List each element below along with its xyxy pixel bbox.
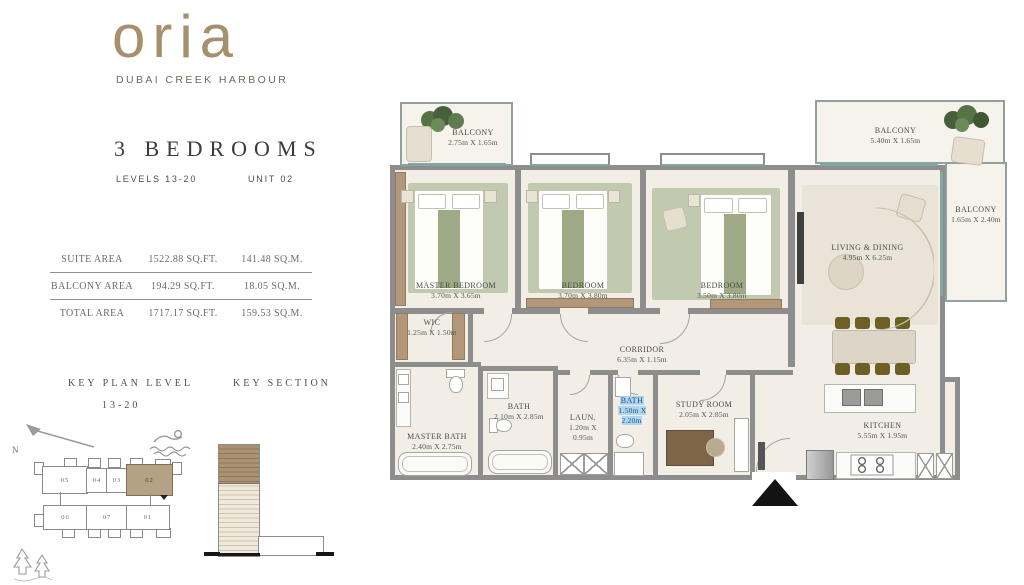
entry-marker [752, 479, 798, 506]
key-plan-subtitle: 13-20 [102, 400, 140, 411]
wall [640, 167, 646, 310]
key-plan-title: KEY PLAN LEVEL [68, 378, 193, 389]
room-dims: 3.70m X 3.65m [397, 291, 515, 301]
table-row: SUITE AREA 1522.88 SQ.FT. 141.48 SQ.M. [50, 246, 312, 273]
wall [478, 366, 483, 480]
wall [750, 370, 755, 480]
bath1-label: BATH 2.10m X 2.85m [486, 402, 552, 422]
north-label: N [12, 445, 19, 455]
room-dims: 3.70m X 3.80m [527, 291, 639, 301]
dining-chair [895, 363, 910, 375]
area-row-sqft: 194.29 SQ.FT. [134, 281, 232, 292]
window-glass [940, 172, 943, 296]
appliance [936, 453, 953, 479]
key-section-ground [216, 553, 260, 556]
unit-number: 03 [107, 469, 127, 492]
balcony-bench [406, 126, 432, 162]
bed-runner [562, 210, 584, 288]
brand-logo: oria [112, 2, 240, 71]
tv-unit [797, 212, 804, 284]
area-row-label: SUITE AREA [50, 254, 134, 265]
stove-icon [850, 454, 894, 476]
room-dims-highlighted: 1.50m X 2.20m [618, 406, 647, 425]
pillow [704, 198, 733, 213]
nightstand [688, 194, 700, 207]
room-dims: 2.05m X 2.85m [675, 410, 733, 420]
key-plan-balcony-tab [108, 458, 121, 468]
plant-icon [938, 104, 994, 136]
key-plan-unit-05: 05 [42, 466, 88, 494]
kitchen-sink [864, 389, 883, 406]
bedroom2-label: BEDROOM 3.70m X 3.80m [527, 281, 639, 301]
window-glass [408, 163, 506, 166]
unit-number: 06 [44, 506, 87, 529]
unit-number: 07 [87, 506, 127, 529]
curved-sofa [838, 202, 934, 343]
area-row-sqft: 1522.88 SQ.FT. [134, 254, 232, 265]
room-name: CORRIDOR [598, 345, 686, 355]
room-name: BALCONY [848, 126, 943, 136]
table-row: TOTAL AREA 1717.17 SQ.FT. 159.53 SQ.M. [50, 300, 312, 326]
fridge [806, 450, 834, 480]
levels-label: LEVELS 13-20 [116, 174, 197, 184]
window-recess [660, 153, 765, 166]
key-plan-unit-03: 03 [106, 468, 128, 493]
dining-chair [875, 363, 890, 375]
kitchen-label: KITCHEN 5.55m X 1.95m [830, 421, 935, 441]
key-plan-unit-02-highlighted: 02 [126, 464, 173, 496]
nightstand [484, 190, 497, 203]
balcony-right [945, 162, 1007, 302]
wall [393, 362, 481, 367]
master-bath-label: MASTER BATH 2.40m X 2.75m [394, 432, 480, 452]
page-title: 3 BEDROOMS [114, 136, 323, 162]
room-dims: 3.50m X 3.80m [662, 291, 782, 301]
room-name: MASTER BATH [394, 432, 480, 442]
balcony-top-label: BALCONY 5.40m X 1.65m [848, 126, 943, 146]
key-section-title: KEY SECTION [233, 378, 331, 389]
washer [560, 453, 584, 475]
desk-chair [706, 438, 725, 457]
basin [491, 378, 504, 391]
room-dims: 1.65m X 2.40m [947, 215, 1005, 225]
pillow [452, 194, 480, 209]
room-name: BEDROOM [662, 281, 782, 291]
area-row-label: BALCONY AREA [50, 281, 134, 292]
room-dims: 6.35m X 1.15m [598, 355, 686, 365]
room-dims: 5.55m X 1.95m [830, 431, 935, 441]
room-name: STUDY ROOM [660, 400, 748, 410]
area-row-sqm: 141.48 SQ.M. [232, 254, 312, 265]
wall [515, 167, 521, 310]
brand-tagline: DUBAI CREEK HARBOUR [116, 74, 288, 86]
table-row: BALCONY AREA 194.29 SQ.FT. 18.05 SQ.M. [50, 273, 312, 300]
balcony-right-label: BALCONY 1.65m X 2.40m [947, 205, 1005, 225]
bath2-label: BATH 1.50m X 2.20m [610, 396, 654, 426]
area-row-sqm: 18.05 SQ.M. [232, 281, 312, 292]
key-plan-balcony-tab [88, 458, 101, 468]
toilet [616, 434, 634, 448]
unit-number: 04 [87, 469, 107, 492]
basin [398, 374, 409, 385]
entry-closet [758, 442, 765, 470]
room-name: BALCONY [947, 205, 1005, 215]
bathtub [488, 450, 552, 474]
balcony-left-label: BALCONY 2.75m X 1.65m [438, 128, 508, 148]
floorplan-brochure-page: oria DUBAI CREEK HARBOUR 3 BEDROOMS LEVE… [0, 0, 1024, 585]
room-name: KITCHEN [830, 421, 935, 431]
room-name: MASTER BEDROOM [397, 281, 515, 291]
key-section-highlighted-levels [218, 444, 260, 484]
dryer [584, 453, 608, 475]
room-name: LIVING & DINING [810, 243, 925, 253]
bedroom3-label: BEDROOM 3.50m X 3.80m [662, 281, 782, 301]
room-dims: 1.25m X 1.50m [406, 328, 458, 338]
wall [478, 366, 558, 371]
basin [398, 392, 409, 403]
room-name: WIC [406, 318, 458, 328]
dining-chair [835, 363, 850, 375]
room-name-highlighted: BATH [620, 396, 645, 405]
room-name: BALCONY [438, 128, 508, 138]
study-label: STUDY ROOM 2.05m X 2.85m [660, 400, 748, 420]
corridor-label: CORRIDOR 6.35m X 1.15m [598, 345, 686, 365]
north-arrow-icon: N [6, 420, 98, 456]
room-dims: 2.75m X 1.65m [438, 138, 508, 148]
window-recess [530, 153, 610, 166]
key-plan-unit-01: 01 [126, 505, 170, 530]
pillow [418, 194, 446, 209]
wall [553, 370, 558, 480]
unit-label: UNIT 02 [248, 174, 294, 184]
study-shelf [734, 418, 749, 472]
room-dims: 5.40m X 1.65m [848, 136, 943, 146]
area-row-sqm: 159.53 SQ.M. [232, 308, 312, 319]
swimmer-icon [148, 427, 194, 457]
shower [614, 452, 644, 476]
laundry-label: LAUN. 1.20m X 0.95m [560, 413, 606, 443]
wic-label: WIC 1.25m X 1.50m [406, 318, 458, 338]
living-dining-label: LIVING & DINING 4.95m X 6.25m [810, 243, 925, 263]
room-dims: 4.95m X 6.25m [810, 253, 925, 263]
unit-number: 05 [43, 467, 87, 493]
key-section-ground [316, 552, 334, 556]
area-table: SUITE AREA 1522.88 SQ.FT. 141.48 SQ.M. B… [50, 246, 312, 326]
bathtub [398, 452, 472, 476]
key-plan-entry-marker [160, 495, 168, 500]
key-plan-unit-07: 07 [86, 505, 128, 530]
key-plan-wall [150, 494, 151, 505]
room-dims: 2.10m X 2.85m [486, 412, 552, 422]
unit-number: 02 [127, 465, 172, 495]
kitchen-sink [842, 389, 861, 406]
balcony-chair [950, 136, 985, 166]
key-plan-corner [172, 462, 182, 475]
area-row-label: TOTAL AREA [50, 308, 134, 319]
area-row-sqft: 1717.17 SQ.FT. [134, 308, 232, 319]
appliance [917, 453, 934, 479]
key-section-podium [258, 536, 324, 556]
wall [468, 310, 473, 365]
room-name: BEDROOM [527, 281, 639, 291]
room-name: LAUN. [560, 413, 606, 423]
dining-chair [855, 363, 870, 375]
nightstand [401, 190, 414, 203]
unit-number: 01 [127, 506, 169, 529]
key-plan-unit-06: 06 [43, 505, 88, 530]
wall [788, 167, 795, 367]
trees-icon [10, 545, 56, 585]
pillow [542, 194, 570, 209]
master-bedroom-label: MASTER BEDROOM 3.70m X 3.65m [397, 281, 515, 301]
key-plan-wall [60, 492, 61, 505]
window-glass [820, 163, 938, 166]
nightstand [526, 190, 538, 203]
toilet [449, 376, 463, 393]
room-dims: 2.40m X 2.75m [394, 442, 480, 452]
key-plan-unit-04: 04 [86, 468, 108, 493]
pillow [738, 198, 767, 213]
nightstand [608, 190, 620, 203]
room-name: BATH [486, 402, 552, 412]
pillow [576, 194, 604, 209]
room-dims: 1.20m X 0.95m [560, 423, 606, 443]
basin [615, 377, 631, 397]
bed-runner [438, 210, 460, 288]
